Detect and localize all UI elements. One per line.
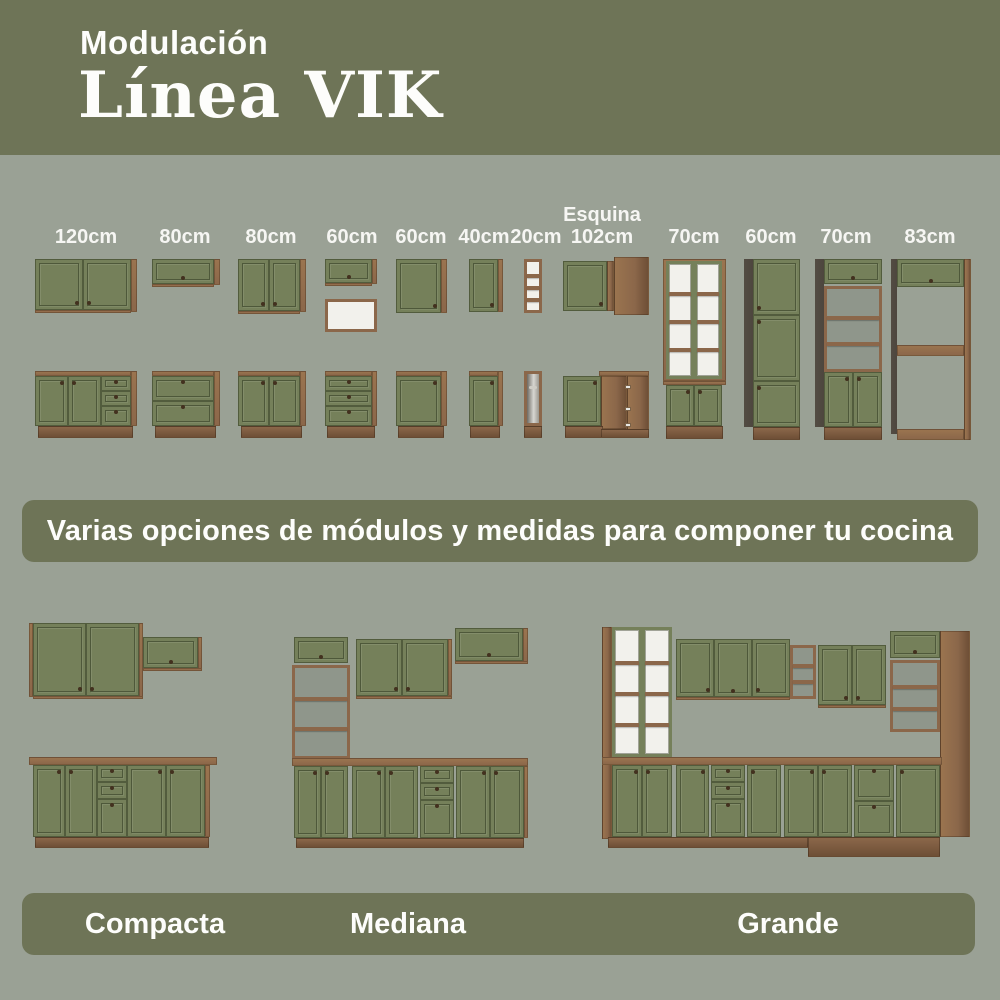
wood-shelf <box>669 320 691 324</box>
kitchen-compacta-render <box>29 620 219 848</box>
cabinet-flap-door <box>824 259 882 284</box>
door-knob <box>114 380 118 384</box>
cabinet-door <box>238 259 269 311</box>
cabinet-door <box>563 376 601 426</box>
door-knob <box>822 770 826 774</box>
wood-shelf <box>697 320 719 324</box>
door-knob <box>851 276 855 280</box>
module-size-text: 80cm <box>245 226 296 248</box>
cabinet-door <box>352 766 385 838</box>
wood-panel <box>940 631 970 837</box>
cabinet-door <box>127 765 166 837</box>
cabinet-flap-door <box>890 631 940 658</box>
dark-side-panel <box>744 259 753 427</box>
cabinet-door <box>563 261 607 311</box>
door-knob <box>319 655 323 659</box>
wood-panel <box>964 259 971 440</box>
door-knob <box>487 653 491 657</box>
door-knob <box>845 377 849 381</box>
door-knob <box>110 803 114 807</box>
wood-shelf <box>793 680 813 684</box>
module-size-text: 80cm <box>159 226 210 248</box>
glass-door <box>666 261 694 379</box>
door-knob <box>114 395 118 399</box>
module-70cm-tall-render <box>815 259 882 440</box>
door-knob <box>701 770 705 774</box>
wood-strip <box>33 696 143 699</box>
wood-plinth <box>470 426 500 438</box>
door-knob <box>78 687 82 691</box>
cabinet-door <box>676 765 709 837</box>
hinge <box>625 385 631 389</box>
wood-plinth <box>398 426 444 438</box>
cabinet-drawer <box>101 406 131 426</box>
wood-plinth <box>35 837 209 848</box>
door-knob <box>646 770 650 774</box>
door-knob <box>435 770 439 774</box>
cabinet-door <box>469 376 498 426</box>
cabinet-drawer <box>325 391 372 406</box>
wood-panel <box>300 371 306 426</box>
door-knob <box>756 688 760 692</box>
door-knob <box>856 696 860 700</box>
door-knob <box>433 381 437 385</box>
door-knob <box>731 689 735 693</box>
cabinet-door <box>853 372 882 427</box>
wood-plinth <box>824 427 882 440</box>
door-knob <box>347 380 351 384</box>
cabinet-door <box>642 765 672 837</box>
wood-panel <box>300 259 306 312</box>
wood-shelf <box>827 342 879 346</box>
cabinet-door <box>612 765 642 837</box>
door-knob <box>347 275 351 279</box>
wood-panel <box>441 259 447 313</box>
door-knob <box>726 786 730 790</box>
page-title: Línea VIK <box>78 58 443 133</box>
door-knob <box>75 301 79 305</box>
cabinet-drawer <box>101 376 131 391</box>
cabinet-drawer <box>97 799 127 837</box>
door-knob <box>273 381 277 385</box>
wood-panel <box>441 371 447 426</box>
wood-strip <box>676 697 790 700</box>
wood-shelf <box>669 348 691 352</box>
cabinet-door <box>490 766 524 838</box>
wood-strip <box>818 705 886 708</box>
cabinet-drawer <box>152 376 214 401</box>
door-knob <box>389 771 393 775</box>
cabinet-drawer <box>101 391 131 406</box>
cabinet-door <box>747 765 781 837</box>
wood-shelf <box>295 727 347 731</box>
door-knob <box>114 410 118 414</box>
cabinet-door <box>83 259 131 310</box>
cabinet-door <box>321 766 348 838</box>
cabinet-drawer <box>420 800 454 838</box>
cabinet-drawer <box>325 376 372 391</box>
towel-rail <box>529 386 537 389</box>
glass-door <box>694 261 722 379</box>
door-knob <box>406 687 410 691</box>
composition-label-mediana: Mediana <box>298 893 518 955</box>
door-knob <box>593 381 597 385</box>
open-niche <box>824 286 882 372</box>
cabinet-door <box>852 645 886 705</box>
cabinet-door <box>65 765 97 837</box>
door-knob <box>751 770 755 774</box>
wood-panel <box>498 259 503 312</box>
door-knob <box>169 660 173 664</box>
door-knob <box>929 279 933 283</box>
wood-plinth <box>327 426 375 438</box>
cabinet-door <box>784 765 818 837</box>
cabinet-flap-door <box>325 259 372 283</box>
door-knob <box>60 381 64 385</box>
wood-panel <box>448 639 452 696</box>
cabinet-door <box>86 623 139 696</box>
module-60cm-render <box>396 259 447 440</box>
door-knob <box>261 302 265 306</box>
cabinet-door <box>33 623 86 696</box>
wood-plinth <box>155 426 216 438</box>
middle-banner-text: Varias opciones de módulos y medidas par… <box>47 515 953 548</box>
bottom-banner: Compacta Mediana Grande <box>22 893 975 955</box>
open-niche <box>890 660 940 732</box>
wood-shelf <box>615 661 639 665</box>
wood-shelf <box>893 707 937 711</box>
kitchen-mediana-render <box>292 625 530 848</box>
wood-panel <box>498 371 503 426</box>
door-knob <box>726 769 730 773</box>
cabinet-door <box>68 376 101 426</box>
door-knob <box>599 302 603 306</box>
module-70cm-tall-render <box>663 259 726 440</box>
door-knob <box>181 380 185 384</box>
door-knob <box>757 306 761 310</box>
cabinet-flap-door <box>294 637 348 663</box>
door-knob <box>90 687 94 691</box>
wood-strip <box>602 757 942 765</box>
wood-plinth <box>666 426 723 439</box>
wood-shelf <box>645 661 669 665</box>
header-band: Modulación Línea VIK <box>0 0 1000 155</box>
module-esquina-render <box>563 257 649 440</box>
wood-shelf <box>527 286 539 290</box>
wood-strip <box>356 696 452 699</box>
door-knob <box>857 377 861 381</box>
cabinet-drawer <box>420 783 454 800</box>
cabinet-door <box>35 259 83 310</box>
wood-shelf <box>295 697 347 701</box>
wood-plinth <box>241 426 302 438</box>
door-knob <box>435 787 439 791</box>
cabinet-flap-door <box>455 628 523 661</box>
cabinet-door <box>396 259 441 313</box>
wood-strip <box>455 661 528 664</box>
door-knob <box>347 395 351 399</box>
wood-shelf <box>697 292 719 296</box>
wood-panel <box>372 259 377 284</box>
door-knob <box>900 770 904 774</box>
cabinet-drawer <box>97 782 127 799</box>
door-knob <box>110 786 114 790</box>
wood-plinth <box>608 837 808 848</box>
door-knob <box>170 770 174 774</box>
wood-plinth <box>524 426 542 438</box>
door-knob <box>757 320 761 324</box>
cabinet-drawer <box>854 801 894 837</box>
door-knob <box>325 771 329 775</box>
wood-shelf <box>793 664 813 668</box>
wood-shelf <box>527 298 539 302</box>
wood-panel <box>614 257 649 315</box>
door-knob <box>273 302 277 306</box>
module-size-text: Esquina <box>547 204 657 226</box>
cabinet-door <box>402 639 448 696</box>
cabinet-door <box>385 766 418 838</box>
door-knob <box>110 769 114 773</box>
wood-plinth <box>38 426 133 438</box>
cabinet-door <box>166 765 205 837</box>
door-knob <box>810 770 814 774</box>
cabinet-door <box>694 385 722 426</box>
wood-panel <box>607 261 614 311</box>
open-niche <box>292 665 350 759</box>
wood-panel <box>131 371 137 426</box>
door-knob <box>394 687 398 691</box>
module-83cm-tall-render <box>891 259 971 440</box>
wood-plinth <box>753 427 800 440</box>
wood-panel <box>372 371 377 426</box>
door-knob <box>490 381 494 385</box>
dark-side-panel <box>815 259 824 427</box>
module-80cm-render <box>238 259 306 440</box>
wood-plinth <box>601 429 649 438</box>
wood-strip <box>29 757 217 765</box>
door-knob <box>57 770 61 774</box>
door-knob <box>726 803 730 807</box>
door-knob <box>757 386 761 390</box>
module-size-label: 83cm <box>875 226 985 248</box>
module-size-text: 120cm <box>55 226 117 248</box>
door-knob <box>913 650 917 654</box>
cabinet-door <box>356 639 402 696</box>
cabinet-door <box>396 376 441 426</box>
module-size-text: 70cm <box>820 226 871 248</box>
wood-strip <box>238 311 300 314</box>
door-knob <box>313 771 317 775</box>
composition-label-compacta: Compacta <box>45 893 265 955</box>
middle-banner: Varias opciones de módulos y medidas par… <box>22 500 978 562</box>
door-knob <box>435 804 439 808</box>
wood-panel <box>214 371 220 426</box>
wood-panel <box>524 766 528 838</box>
cabinet-door <box>752 639 790 697</box>
glass-door <box>612 627 642 757</box>
wood-panel <box>897 429 964 440</box>
cabinet-door <box>753 381 800 427</box>
open-niche <box>790 645 816 699</box>
door-knob <box>706 688 710 692</box>
open-shelf-box <box>325 299 377 332</box>
glass-door <box>642 627 672 757</box>
module-size-text: 60cm <box>745 226 796 248</box>
cabinet-flap-door <box>897 259 964 287</box>
door-knob <box>72 381 76 385</box>
door-knob <box>482 771 486 775</box>
cabinet-door <box>666 385 694 426</box>
door-knob <box>634 770 638 774</box>
cabinet-door <box>269 259 300 311</box>
infographic-canvas: Modulación Línea VIK 120cm 80cm 80cm 60c… <box>0 0 1000 1000</box>
cabinet-door <box>676 639 714 697</box>
wood-shelf <box>527 274 539 278</box>
door-knob <box>686 390 690 394</box>
door-knob <box>698 390 702 394</box>
door-knob <box>490 303 494 307</box>
wood-shelf <box>645 723 669 727</box>
door-knob <box>261 381 265 385</box>
wood-shelf <box>615 723 639 727</box>
door-knob <box>844 696 848 700</box>
cabinet-door <box>818 765 852 837</box>
wood-strip <box>35 310 131 313</box>
cabinet-drawer <box>152 401 214 426</box>
wood-shelf <box>893 685 937 689</box>
cabinet-drawer <box>420 766 454 783</box>
wood-panel <box>523 628 528 662</box>
cabinet-door <box>456 766 490 838</box>
module-size-text: 70cm <box>668 226 719 248</box>
door-knob <box>87 301 91 305</box>
composition-label-grande: Grande <box>678 893 898 955</box>
cabinet-drawer <box>325 406 372 426</box>
door-knob <box>872 769 876 773</box>
door-knob <box>347 410 351 414</box>
cabinet-drawer <box>854 765 894 801</box>
wood-shelf <box>645 692 669 696</box>
wood-plinth <box>808 837 940 857</box>
cabinet-door <box>238 376 269 426</box>
door-knob <box>377 771 381 775</box>
cabinet-flap-door <box>152 259 214 284</box>
hinge <box>625 423 631 427</box>
wood-panel <box>897 345 964 356</box>
wood-strip <box>152 284 214 287</box>
module-size-text: 83cm <box>904 226 955 248</box>
wood-shelf <box>669 292 691 296</box>
door-knob <box>494 771 498 775</box>
cabinet-drawer <box>711 782 745 799</box>
module-120cm-render <box>35 259 137 440</box>
wood-strip <box>325 283 372 286</box>
wood-panel <box>602 627 612 839</box>
cabinet-door <box>824 372 853 427</box>
module-60cm-tall-render <box>744 259 800 440</box>
header-kicker: Modulación <box>80 24 268 62</box>
wood-panel <box>131 259 137 312</box>
cabinet-door <box>269 376 300 426</box>
door-knob <box>433 304 437 308</box>
cabinet-drawer <box>97 765 127 782</box>
kitchen-grande-render <box>602 625 970 860</box>
cabinet-door <box>35 376 68 426</box>
wood-shelf <box>697 348 719 352</box>
module-80cm-render <box>152 259 220 440</box>
wood-strip <box>292 758 528 766</box>
wood-shelf <box>827 316 879 320</box>
wood-panel <box>601 376 627 429</box>
door-knob <box>181 405 185 409</box>
hinge <box>625 407 631 411</box>
open-towel-niche <box>524 371 542 426</box>
door-knob <box>872 805 876 809</box>
module-60cm-render <box>325 259 377 440</box>
cabinet-drawer <box>711 799 745 837</box>
wood-strip <box>143 668 202 671</box>
wood-plinth <box>565 426 603 438</box>
wood-plinth <box>296 838 524 848</box>
door-knob <box>181 276 185 280</box>
door-knob <box>158 770 162 774</box>
cabinet-door <box>294 766 321 838</box>
cabinet-flap-door <box>143 637 198 668</box>
module-size-label: 120cm <box>31 226 141 248</box>
wood-panel <box>214 259 220 285</box>
cabinet-door <box>818 645 852 705</box>
cabinet-door <box>896 765 940 837</box>
door-knob <box>69 770 73 774</box>
wood-panel <box>205 765 210 837</box>
cabinet-door <box>753 259 800 315</box>
open-shelf-box <box>524 259 542 313</box>
module-20cm-render <box>524 259 542 440</box>
module-40cm-render <box>469 259 503 440</box>
wood-panel <box>198 637 202 669</box>
cabinet-door <box>714 639 752 697</box>
cabinet-door <box>469 259 498 312</box>
cabinet-door <box>33 765 65 837</box>
wood-shelf <box>615 692 639 696</box>
cabinet-door <box>753 315 800 381</box>
cabinet-drawer <box>711 765 745 782</box>
